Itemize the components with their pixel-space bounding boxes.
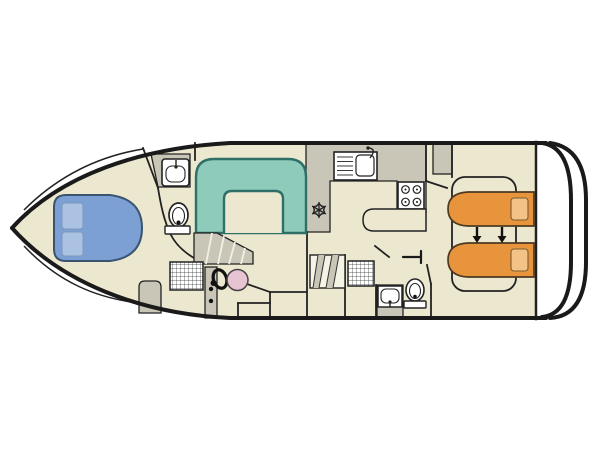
console-dot-1 — [209, 287, 213, 291]
stern-inner-curve — [542, 143, 571, 317]
front-washbasin — [162, 159, 189, 186]
floor-plan-canvas — [0, 0, 600, 450]
u-shaped-dinette — [196, 159, 306, 233]
dinette-inner-floor — [224, 191, 283, 233]
front-bed-pillow-bottom — [62, 232, 83, 256]
aft-pillow-top — [511, 198, 528, 220]
galley-sink — [334, 146, 377, 180]
boat-floor-plan — [0, 0, 600, 450]
aft-toilet — [404, 279, 426, 308]
companionway-steps — [310, 255, 345, 288]
aft-pillow-bottom — [511, 249, 528, 271]
front-double-bed — [54, 195, 142, 261]
aft-wardrobe — [433, 144, 452, 174]
wheel-hub — [211, 280, 217, 286]
front-bed-pillow-top — [62, 203, 83, 229]
helm-seat — [227, 270, 248, 291]
galley-hob — [398, 182, 424, 209]
helm-console — [205, 267, 217, 318]
console-dot-2 — [209, 299, 213, 303]
galley-peninsula-counter — [363, 209, 426, 231]
aft-washbasin — [378, 286, 402, 307]
entry-grating-port — [170, 262, 203, 290]
entry-grating-starboard — [348, 261, 374, 286]
